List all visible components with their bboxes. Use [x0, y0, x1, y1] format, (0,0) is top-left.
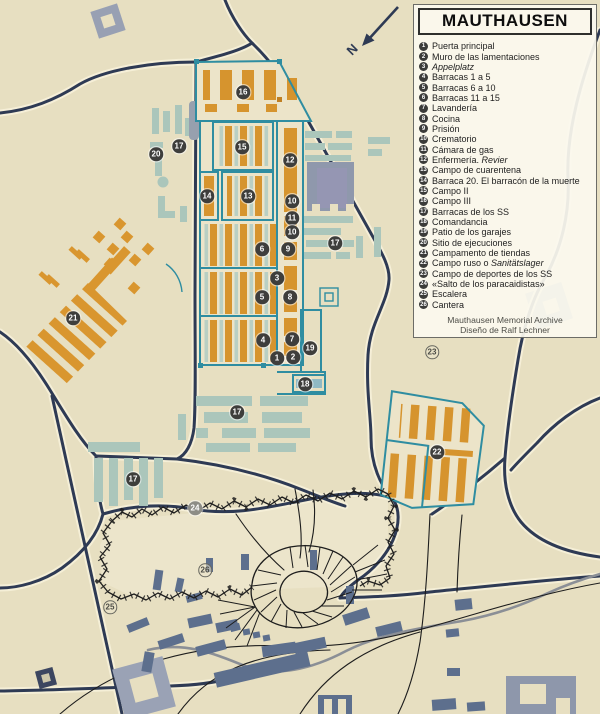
legend-item-label: Barracas 6 a 10 — [432, 83, 496, 93]
legend-item-label: Barracas de los SS — [432, 207, 509, 217]
legend-item-label: Appelplatz — [432, 62, 474, 72]
legend-item-9: 9Prisión — [419, 124, 593, 134]
legend-item-7: 7Lavandería — [419, 103, 593, 113]
legend-item-1: 1Puerta principal — [419, 41, 593, 51]
gas-chamber-building — [307, 162, 354, 211]
legend-item-23: 23Campo de deportes de los SS — [419, 269, 593, 279]
legend-item-22: 22Campo ruso o Sanitätslager — [419, 258, 593, 268]
legend-item-label: Lavandería — [432, 103, 477, 113]
legend-item-label: Campamento de tiendas — [432, 248, 530, 258]
legend-item-number: 2 — [419, 52, 428, 61]
legend-item-15: 15Campo II — [419, 186, 593, 196]
legend-item-label: Escalera — [432, 289, 467, 299]
legend-item-2: 2Muro de las lamentaciones — [419, 51, 593, 61]
legend-item-number: 9 — [419, 124, 428, 133]
legend-item-number: 1 — [419, 42, 428, 51]
legend-item-label: Barracas 11 a 15 — [432, 93, 500, 103]
legend-item-4: 4Barracas 1 a 5 — [419, 72, 593, 82]
legend-item-label: Crematorio — [432, 134, 477, 144]
legend-item-number: 11 — [419, 145, 428, 154]
legend-item-11: 11Cámara de gas — [419, 144, 593, 154]
legend-item-14: 14Barraca 20. El barracón de la muerte — [419, 175, 593, 185]
legend-items: 1Puerta principal2Muro de las lamentacio… — [414, 38, 596, 310]
legend-item-number: 22 — [419, 259, 428, 268]
legend-item-3: 3Appelplatz — [419, 62, 593, 72]
legend-item-number: 15 — [419, 186, 428, 195]
legend-item-number: 14 — [419, 176, 428, 185]
legend-item-number: 26 — [419, 300, 428, 309]
mauthausen-map: N 12345678910111012131415161717171718192… — [0, 0, 600, 714]
legend-item-13: 13Campo de cuarentena — [419, 165, 593, 175]
legend-item-label: Campo III — [432, 196, 471, 206]
legend-item-label: Prisión — [432, 124, 460, 134]
legend-item-label: «Salto de los paracaidistas» — [432, 279, 545, 289]
legend-item-label: Cantera — [432, 300, 464, 310]
legend-item-label: Patio de los garajes — [432, 227, 511, 237]
legend-item-label: Cocina — [432, 114, 460, 124]
legend: MAUTHAUSEN 1Puerta principal2Muro de las… — [413, 4, 597, 338]
legend-item-25: 25Escalera — [419, 289, 593, 299]
legend-item-number: 18 — [419, 218, 428, 227]
legend-item-26: 26Cantera — [419, 300, 593, 310]
legend-item-number: 19 — [419, 228, 428, 237]
legend-item-number: 3 — [419, 62, 428, 71]
legend-item-21: 21Campamento de tiendas — [419, 248, 593, 258]
legend-footer: Mauthausen Memorial Archive Diseño de Ra… — [414, 315, 596, 336]
legend-item-12: 12Enfermería. Revier — [419, 155, 593, 165]
legend-item-20: 20Sitio de ejecuciones — [419, 238, 593, 248]
legend-item-number: 7 — [419, 104, 428, 113]
legend-item-label: Campo de deportes de los SS — [432, 269, 552, 279]
legend-item-label: Campo ruso o Sanitätslager — [432, 258, 544, 268]
legend-item-number: 6 — [419, 93, 428, 102]
legend-item-18: 18Comandancia — [419, 217, 593, 227]
legend-item-number: 5 — [419, 83, 428, 92]
legend-item-label: Campo de cuarentena — [432, 165, 521, 175]
legend-item-label: Sitio de ejecuciones — [432, 238, 512, 248]
legend-item-number: 21 — [419, 249, 428, 258]
legend-item-number: 10 — [419, 135, 428, 144]
legend-item-17: 17Barracas de los SS — [419, 207, 593, 217]
legend-item-number: 20 — [419, 238, 428, 247]
legend-footer-line2: Diseño de Ralf Lechner — [414, 325, 596, 336]
legend-footer-line1: Mauthausen Memorial Archive — [414, 315, 596, 326]
legend-item-number: 16 — [419, 197, 428, 206]
legend-item-label: Barraca 20. El barracón de la muerte — [432, 176, 580, 186]
legend-title: MAUTHAUSEN — [442, 11, 568, 30]
legend-item-number: 13 — [419, 166, 428, 175]
legend-title-box: MAUTHAUSEN — [418, 8, 592, 35]
legend-item-number: 4 — [419, 73, 428, 82]
legend-item-label: Enfermería. Revier — [432, 155, 508, 165]
legend-item-label: Cámara de gas — [432, 145, 494, 155]
legend-item-number: 17 — [419, 207, 428, 216]
legend-item-number: 23 — [419, 269, 428, 278]
russian-camp — [380, 391, 486, 513]
legend-item-19: 19Patio de los garajes — [419, 227, 593, 237]
legend-item-24: 24«Salto de los paracaidistas» — [419, 279, 593, 289]
legend-item-label: Puerta principal — [432, 41, 495, 51]
legend-item-label: Campo II — [432, 186, 469, 196]
legend-item-16: 16Campo III — [419, 196, 593, 206]
legend-item-8: 8Cocina — [419, 113, 593, 123]
legend-item-6: 6Barracas 11 a 15 — [419, 93, 593, 103]
legend-item-number: 8 — [419, 114, 428, 123]
legend-item-5: 5Barracas 6 a 10 — [419, 82, 593, 92]
legend-item-10: 10Crematorio — [419, 134, 593, 144]
legend-item-number: 25 — [419, 290, 428, 299]
legend-item-number: 24 — [419, 280, 428, 289]
legend-item-label: Barracas 1 a 5 — [432, 72, 491, 82]
legend-item-label: Muro de las lamentaciones — [432, 52, 540, 62]
legend-item-label: Comandancia — [432, 217, 488, 227]
legend-item-number: 12 — [419, 155, 428, 164]
